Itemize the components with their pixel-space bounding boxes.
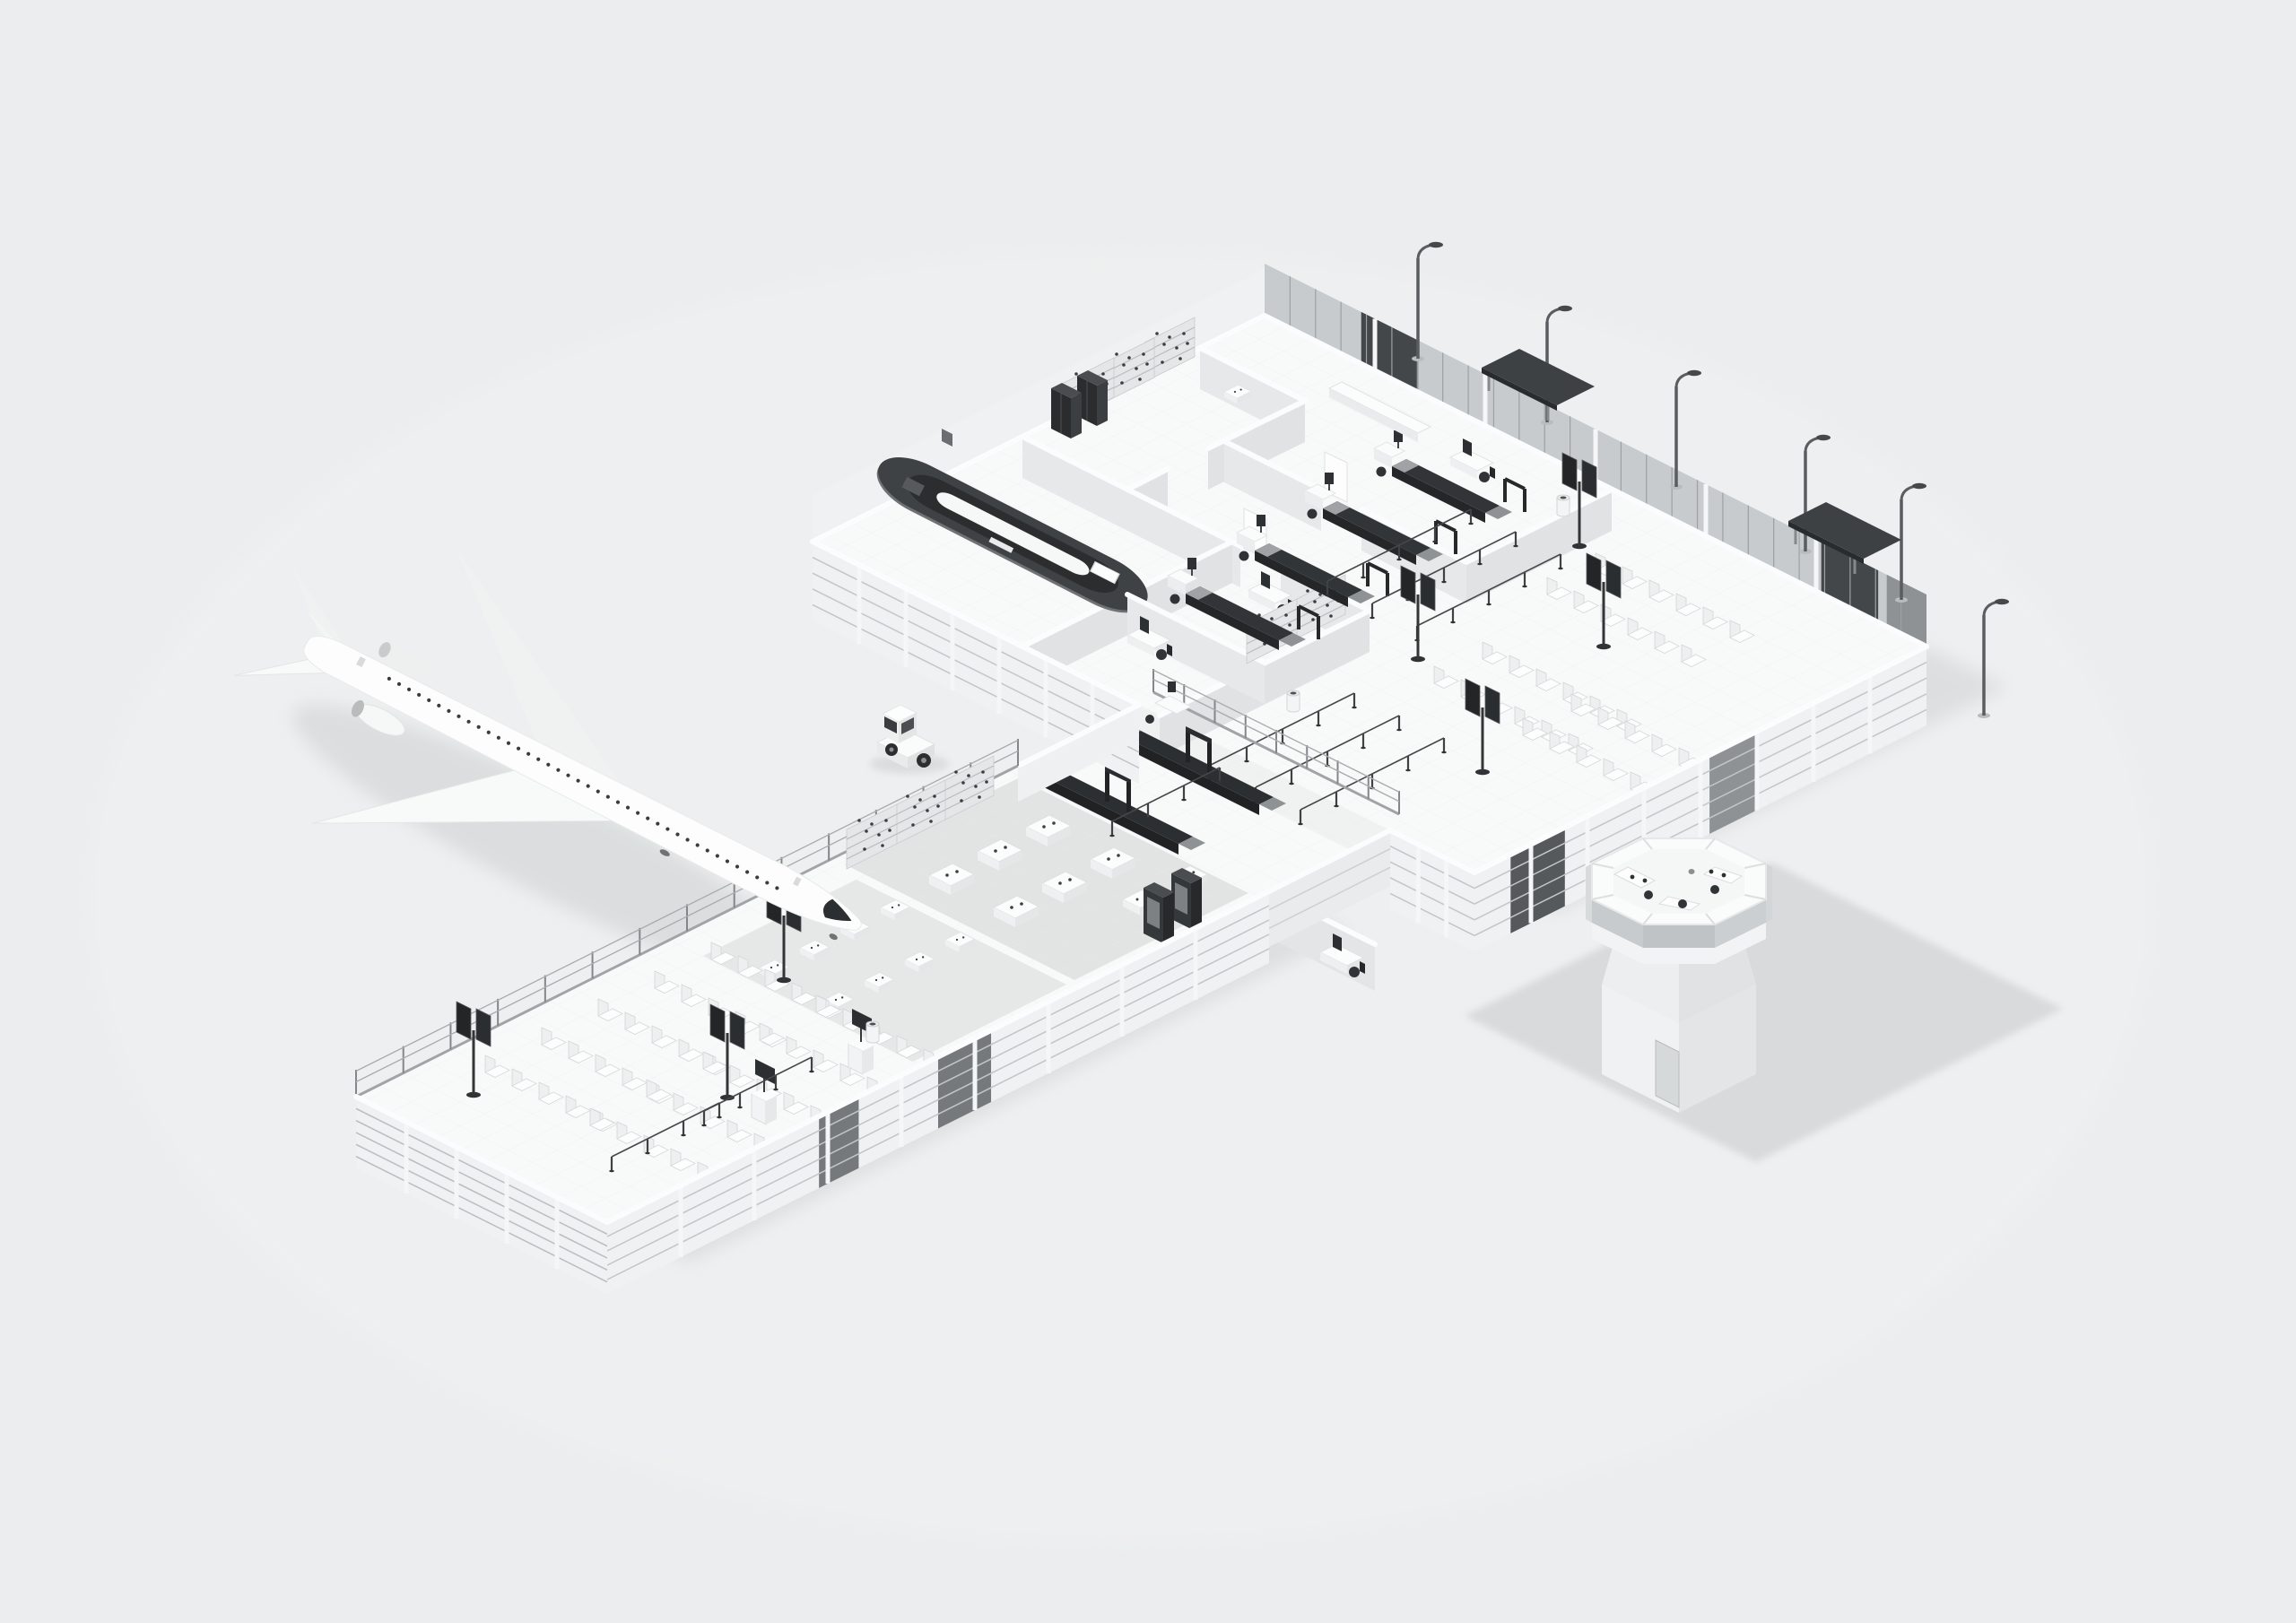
barrier-base <box>1361 577 1366 578</box>
locker-side <box>1097 380 1108 426</box>
airport-isometric-scene <box>0 0 2296 1623</box>
barrier-base <box>645 1152 650 1154</box>
lamp-head <box>1816 435 1831 440</box>
vending-machine <box>1144 882 1174 943</box>
tower-glass-side-l <box>1586 864 1592 923</box>
shelf-item <box>906 794 909 798</box>
shelf-item <box>1155 332 1159 335</box>
barrier-base <box>1522 586 1527 587</box>
shelf-item <box>1074 372 1078 376</box>
shelf-item <box>933 794 936 798</box>
agent-chair <box>1239 551 1249 561</box>
shelf-item <box>881 844 884 847</box>
lamp-head <box>1429 242 1443 247</box>
table-item <box>770 967 772 968</box>
tug-wheel-hub <box>921 758 926 763</box>
table-item <box>882 976 883 978</box>
dot <box>1643 879 1648 883</box>
shelf-item <box>884 819 888 822</box>
dot <box>1722 873 1726 878</box>
table-item <box>994 849 997 853</box>
lamp-head <box>1558 306 1572 311</box>
vending-side <box>1163 892 1174 943</box>
table-item <box>1010 906 1013 909</box>
chair-seat <box>1678 899 1687 908</box>
table-item <box>891 907 893 908</box>
table-item <box>945 873 949 877</box>
table-item <box>1058 881 1062 885</box>
table-item <box>777 964 778 966</box>
dot <box>1631 875 1635 880</box>
desk-chair <box>1349 967 1360 977</box>
detector-post <box>1105 771 1109 802</box>
gate-post <box>1297 606 1300 629</box>
tower-glass-2 <box>1643 924 1715 948</box>
detector-post <box>1186 732 1190 762</box>
table-item <box>811 947 813 949</box>
trash-can <box>1557 495 1570 516</box>
shelf-item <box>857 819 861 822</box>
shelf-item <box>1161 360 1164 364</box>
locker-cabinet <box>1051 383 1082 438</box>
tower-glass-side-r <box>1766 864 1772 923</box>
barrier-base <box>1109 835 1115 837</box>
table-item <box>1004 846 1007 849</box>
gate-post <box>1503 479 1507 502</box>
barrier-base <box>609 1170 614 1172</box>
chair-seat <box>1710 885 1719 894</box>
table-item <box>875 979 877 981</box>
shelf-item <box>865 829 868 833</box>
lamp-head <box>1912 483 1926 489</box>
barrier-base <box>1477 563 1483 565</box>
shelf-item <box>1101 372 1105 376</box>
shelf-item <box>1326 603 1329 607</box>
barrier-base <box>1334 805 1339 807</box>
desk-monitor <box>1257 515 1265 526</box>
trash-hole <box>1561 497 1567 499</box>
vending-machine <box>1171 868 1202 929</box>
barrier-base <box>1370 617 1375 619</box>
table-item <box>956 939 958 941</box>
barrier-base <box>1396 729 1402 731</box>
shelf-item <box>877 833 881 837</box>
lamp-head <box>1995 599 2009 604</box>
desk-monitor <box>1325 473 1334 484</box>
table-item <box>817 944 819 946</box>
barrier-base <box>1558 568 1563 569</box>
gate-post <box>1366 563 1370 586</box>
shelf-item <box>1329 614 1333 618</box>
trash-can <box>866 1021 879 1043</box>
shelf-item <box>1135 367 1138 370</box>
barrier-base <box>1325 595 1330 596</box>
shelf-item <box>1142 352 1145 356</box>
shelf-item <box>1175 346 1178 350</box>
table-item <box>1136 898 1139 901</box>
trash-hole <box>1291 692 1297 695</box>
shelf-item <box>1311 618 1315 621</box>
table-item <box>1192 871 1195 873</box>
scene-root <box>90 242 2152 1542</box>
gate-post <box>1523 489 1526 512</box>
gate-post <box>1317 616 1320 639</box>
barrier-base <box>1244 760 1249 762</box>
shelf-item <box>985 780 988 784</box>
shelf-item <box>1127 356 1131 360</box>
locker-cabinet <box>1077 370 1108 426</box>
shelf-item <box>1168 335 1171 339</box>
barrier-base <box>1217 781 1222 783</box>
table-item <box>898 904 900 906</box>
table-item <box>841 996 843 998</box>
shelf-item <box>981 770 985 774</box>
agent-chair <box>1308 509 1318 519</box>
agent-chair <box>1170 595 1180 604</box>
trash-can <box>1287 690 1300 712</box>
lamp-head <box>1687 370 1701 376</box>
barrier-base <box>1450 621 1456 623</box>
agent-chair <box>1377 467 1387 477</box>
desk-chair <box>1156 649 1167 660</box>
shelf-item <box>961 781 965 785</box>
shelf-item <box>913 805 917 809</box>
table-item <box>1240 389 1242 391</box>
shelf-item <box>1138 378 1142 381</box>
barrier-base <box>1396 559 1402 560</box>
barrier-base <box>1181 799 1187 801</box>
table-item <box>955 870 959 873</box>
table-item <box>1107 857 1110 861</box>
barrier-base <box>1468 523 1474 525</box>
barrier-base <box>1145 817 1151 819</box>
dot <box>1709 870 1714 874</box>
shelf-item <box>911 823 915 827</box>
barrier-base <box>681 1134 686 1136</box>
trash-hole <box>870 1023 876 1026</box>
detector-post <box>1207 742 1212 773</box>
shelf-item <box>978 795 981 799</box>
shelf-item <box>974 785 978 788</box>
shelf-item <box>1182 332 1186 335</box>
gate-post <box>1454 531 1457 554</box>
table-item <box>1234 391 1236 393</box>
detector-post <box>1126 782 1131 812</box>
shelf-item <box>1122 363 1126 367</box>
shelf-item <box>870 822 874 826</box>
barrier-base <box>773 1089 778 1090</box>
table-item <box>1117 854 1120 857</box>
shelf-item <box>954 770 958 774</box>
barrier-base <box>717 1116 722 1118</box>
barrier-base <box>1361 747 1366 749</box>
shelf-item <box>888 829 891 832</box>
table-item <box>1052 821 1056 825</box>
shelf-item <box>1178 357 1182 360</box>
shelf-item <box>960 799 963 803</box>
shelf-item <box>1115 352 1118 356</box>
shelf-item <box>1145 362 1149 366</box>
gate-post <box>1386 573 1389 596</box>
barrier-base <box>1298 823 1303 825</box>
chair-seat <box>1644 890 1653 899</box>
shelf-item <box>1162 343 1166 346</box>
shelf-item <box>1288 623 1291 627</box>
shelf-item <box>1284 613 1288 617</box>
shelf-item <box>1186 342 1189 345</box>
table-item <box>916 959 918 960</box>
desk-monitor <box>1187 558 1196 569</box>
tug-wheel-hub <box>890 748 894 752</box>
table-item <box>1068 878 1072 881</box>
locker-side <box>1071 393 1082 438</box>
shelf-item <box>1270 617 1274 621</box>
desk-monitor <box>1168 681 1176 692</box>
tower-plant <box>1689 869 1695 874</box>
barrier-base <box>1513 545 1518 547</box>
vending-side <box>1191 878 1202 929</box>
barrier-base <box>1486 603 1492 605</box>
desk-chair <box>1479 472 1490 482</box>
barrier-base <box>1441 751 1447 753</box>
barrier-base <box>1289 783 1294 785</box>
tower-door <box>1656 1040 1679 1107</box>
shelf-item <box>1306 589 1309 593</box>
barrier-base <box>1432 541 1438 542</box>
barrier-base <box>1405 769 1411 771</box>
barrier-base <box>737 1107 743 1108</box>
tower-chair <box>1710 885 1719 894</box>
officer-chair <box>1145 715 1154 724</box>
shelf-item <box>929 820 933 823</box>
barrier-base <box>1441 581 1447 583</box>
shelf-item <box>1313 600 1317 603</box>
shelf-item <box>1120 381 1124 385</box>
barrier-base <box>809 1071 814 1072</box>
shelf-item <box>967 774 970 777</box>
shelf-item <box>863 847 866 851</box>
barrier-base <box>701 1124 707 1126</box>
tower-chair <box>1678 899 1687 908</box>
table-item <box>922 956 924 958</box>
shelf-item <box>936 804 940 808</box>
barrier-base <box>1316 725 1321 726</box>
table-item <box>1042 825 1046 829</box>
table-item <box>962 936 964 938</box>
barrier-base <box>1352 707 1357 708</box>
shelf-item <box>918 798 922 802</box>
render-stage <box>0 0 2296 1623</box>
shelf-item <box>926 809 929 812</box>
table-item <box>835 999 837 1001</box>
tower-chair <box>1644 890 1653 899</box>
table-item <box>1020 902 1023 906</box>
